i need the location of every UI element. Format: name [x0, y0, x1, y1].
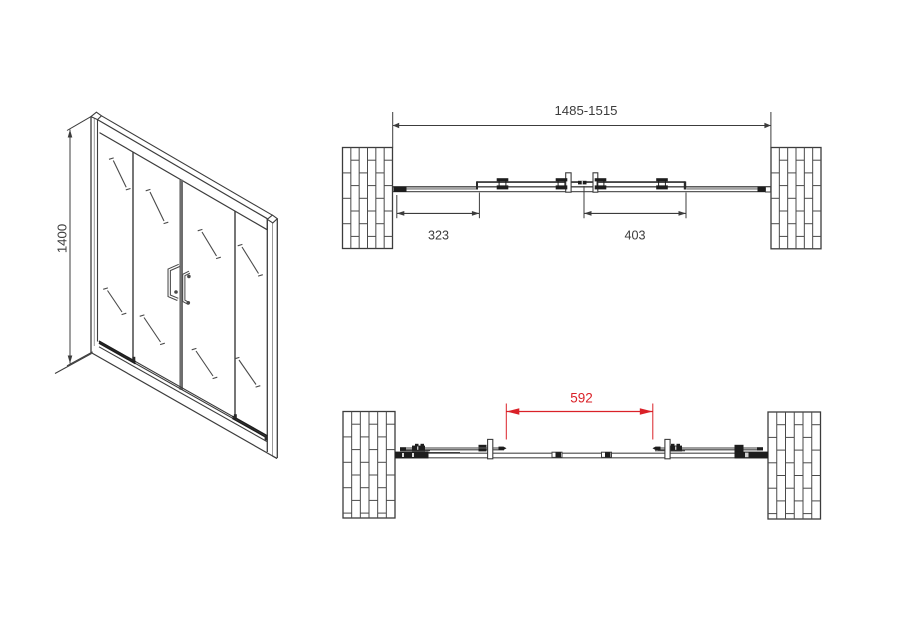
svg-text:1400: 1400	[54, 224, 69, 253]
svg-text:403: 403	[624, 228, 645, 242]
svg-text:323: 323	[428, 228, 449, 242]
svg-text:592: 592	[570, 391, 593, 406]
svg-text:1485-1515: 1485-1515	[554, 103, 617, 118]
